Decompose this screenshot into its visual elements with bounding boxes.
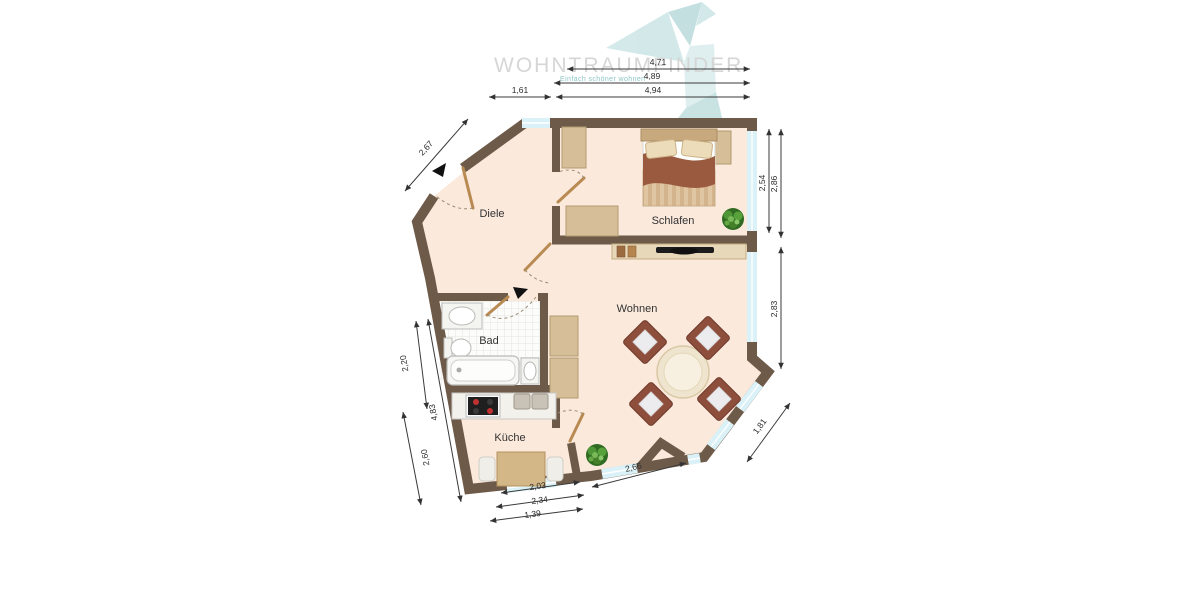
- wardrobe: [562, 127, 586, 168]
- entrance-direction-triangle-icon: [432, 163, 446, 177]
- dimension-label: 2,86: [769, 175, 779, 192]
- sink: [514, 394, 530, 409]
- dimension-label: 2,03: [529, 480, 547, 492]
- dimension-label: 4,94: [645, 85, 662, 95]
- dimension-label: 1,39: [524, 508, 542, 520]
- double-bed: [641, 129, 717, 206]
- washbasin: [449, 307, 475, 325]
- toilet: [451, 339, 471, 357]
- dimension-label: 2,67: [417, 138, 436, 157]
- dimension-line: [416, 321, 427, 409]
- room-label-schlafen: Schlafen: [652, 215, 695, 227]
- dimension-label: 2,83: [769, 300, 779, 317]
- dimension-label: 4,89: [644, 71, 661, 81]
- dimension-label: 2,34: [531, 494, 549, 506]
- chair: [547, 457, 563, 481]
- dimension-label: 1,81: [751, 416, 769, 435]
- room-label-wohnen: Wohnen: [617, 303, 658, 315]
- tv-sideboard: [612, 244, 746, 259]
- room-label-bad: Bad: [479, 335, 499, 347]
- window-living-bottom-small: [688, 458, 700, 460]
- room-label-diele: Diele: [479, 208, 504, 220]
- room-label-kueche: Küche: [494, 432, 525, 444]
- plant: [586, 444, 608, 466]
- dimension-label: 2,20: [398, 354, 411, 372]
- wardrobe: [566, 206, 618, 236]
- dimension-label: 2,60: [419, 448, 432, 466]
- plant: [722, 208, 744, 230]
- wardrobe: [550, 358, 578, 398]
- dimension-line: [403, 412, 421, 505]
- dimension-label: 4,71: [650, 57, 667, 67]
- watermark-tagline: Einfach schöner wohnen: [560, 76, 645, 83]
- dimension-label: 1,61: [512, 85, 529, 95]
- floorplan-svg: WOHNTRAUMFINDER Einfach schöner wohnen: [0, 0, 1200, 600]
- wardrobe: [550, 316, 578, 356]
- floorplan-page: WOHNTRAUMFINDER Einfach schöner wohnen: [0, 0, 1200, 600]
- dimension-label: 4,83: [427, 403, 440, 421]
- watermark-brand: WOHNTRAUMFINDER: [494, 54, 743, 77]
- dimension-label: 2,54: [757, 174, 767, 191]
- chair: [479, 457, 495, 481]
- sink: [532, 394, 548, 409]
